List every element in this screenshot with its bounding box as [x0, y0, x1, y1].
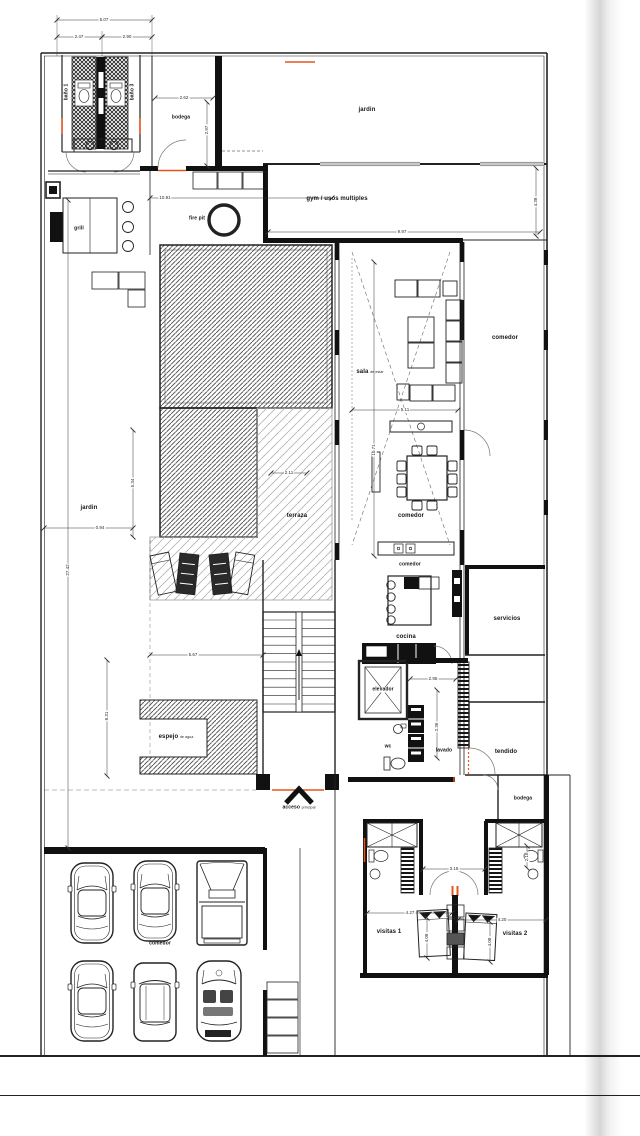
dim-bodega-w: 2.62	[179, 96, 190, 101]
dim-visitas1-h: 4.08	[425, 933, 430, 944]
dim-pool-h: 5.34	[131, 478, 136, 489]
dim-top-b: 2.90	[122, 35, 133, 40]
dim-gym-w: 9.97	[397, 230, 408, 235]
label-sala-main: sala	[356, 369, 368, 375]
label-sala: sala de estar	[356, 369, 383, 375]
label-bodega-lower: bodega	[514, 797, 532, 802]
dim-court-h: 8.31	[105, 711, 110, 722]
street-lines	[0, 1056, 640, 1096]
car-pickup	[197, 861, 247, 945]
bathroom-block	[46, 55, 141, 198]
dim-visitas2-h: 4.08	[488, 937, 493, 948]
tendido-room	[469, 702, 546, 774]
label-espejo-main: espejo	[159, 734, 179, 740]
gym-room	[193, 162, 547, 244]
dim-hall-h: 2.36	[435, 722, 440, 733]
dim-bath-gap: 3.15	[449, 867, 460, 872]
fire-pit	[209, 205, 239, 235]
label-grill: grill	[74, 227, 84, 232]
dim-terrace-len: 10.91	[158, 196, 171, 201]
dim-hall-w: 2.95	[428, 677, 439, 682]
dim-deck-w: 2.11	[284, 471, 294, 476]
label-visitas1: visitas 1	[377, 929, 402, 935]
dim-visitas2-w: 4.20	[497, 918, 508, 923]
servicios-room	[465, 565, 545, 655]
garage-cars	[68, 861, 247, 1041]
label-acceso: acceso principal	[283, 806, 316, 811]
label-bodega-top: bodega	[172, 116, 190, 121]
label-espejo-sub: de agua	[180, 735, 193, 739]
label-comedor-dining: comedor	[398, 513, 424, 519]
label-sala-sub: de estar	[370, 370, 383, 374]
floorplan-page: baño 1 baño 3 bodega jardin gym / usos m…	[0, 0, 640, 1136]
dim-stair-w: 5.67	[188, 653, 199, 658]
car-sedan-3	[68, 961, 116, 1041]
dim-top-a: 2.47	[74, 35, 85, 40]
label-wc: wc	[385, 745, 392, 750]
label-espejo: espejo de agua	[158, 734, 195, 740]
label-cocina: cocina	[396, 634, 416, 640]
label-comedor-right: comedor	[492, 335, 518, 341]
label-terraza: terraza	[287, 513, 307, 519]
guest-wing	[360, 775, 549, 978]
dim-visitas1-w: 4.27	[405, 911, 416, 916]
floorplan-linework	[0, 0, 640, 1136]
label-acceso-main: acceso	[283, 805, 301, 811]
label-acceso-sub: principal	[302, 806, 316, 810]
label-lavado: lavado	[436, 749, 452, 754]
dim-site-h: 27.42	[66, 563, 71, 576]
bodega-top	[140, 56, 263, 171]
living-block-walls	[335, 242, 548, 775]
label-banio1: baño 1	[65, 84, 70, 101]
dining-set	[372, 421, 457, 510]
car-suv	[131, 963, 179, 1041]
grill-area	[48, 171, 150, 307]
car-convertible	[197, 961, 241, 1041]
car-sedan-2	[131, 861, 179, 941]
label-garage: comedor	[149, 942, 171, 947]
dim-sala-w: 5.11	[400, 408, 410, 413]
label-tendido: tendido	[495, 749, 517, 755]
label-comedor-bar: comedor	[399, 563, 421, 568]
sala-furniture	[395, 280, 462, 401]
label-fire-pit: fire pit	[189, 217, 205, 222]
dim-sala-h: 10.71	[372, 443, 377, 456]
dim-bodega-h: 2.97	[205, 125, 210, 136]
kitchen	[362, 542, 462, 664]
label-gym: gym / usos multiples	[306, 196, 367, 202]
dim-top-total: 5.07	[99, 18, 110, 23]
car-sedan-1	[68, 863, 116, 943]
dim-gym-h: 4.38	[534, 197, 539, 208]
label-servicios: servicios	[494, 616, 521, 622]
label-jardin-top: jardin	[359, 107, 376, 113]
dim-closet-d: 2.10	[525, 852, 530, 863]
label-jardin-left: jardin	[81, 505, 98, 511]
label-visitas2: visitas 2	[503, 931, 528, 937]
label-elevador: elevador	[371, 688, 394, 693]
dim-jardin-w: 0.94	[95, 526, 106, 531]
label-banio3: baño 3	[131, 84, 136, 101]
